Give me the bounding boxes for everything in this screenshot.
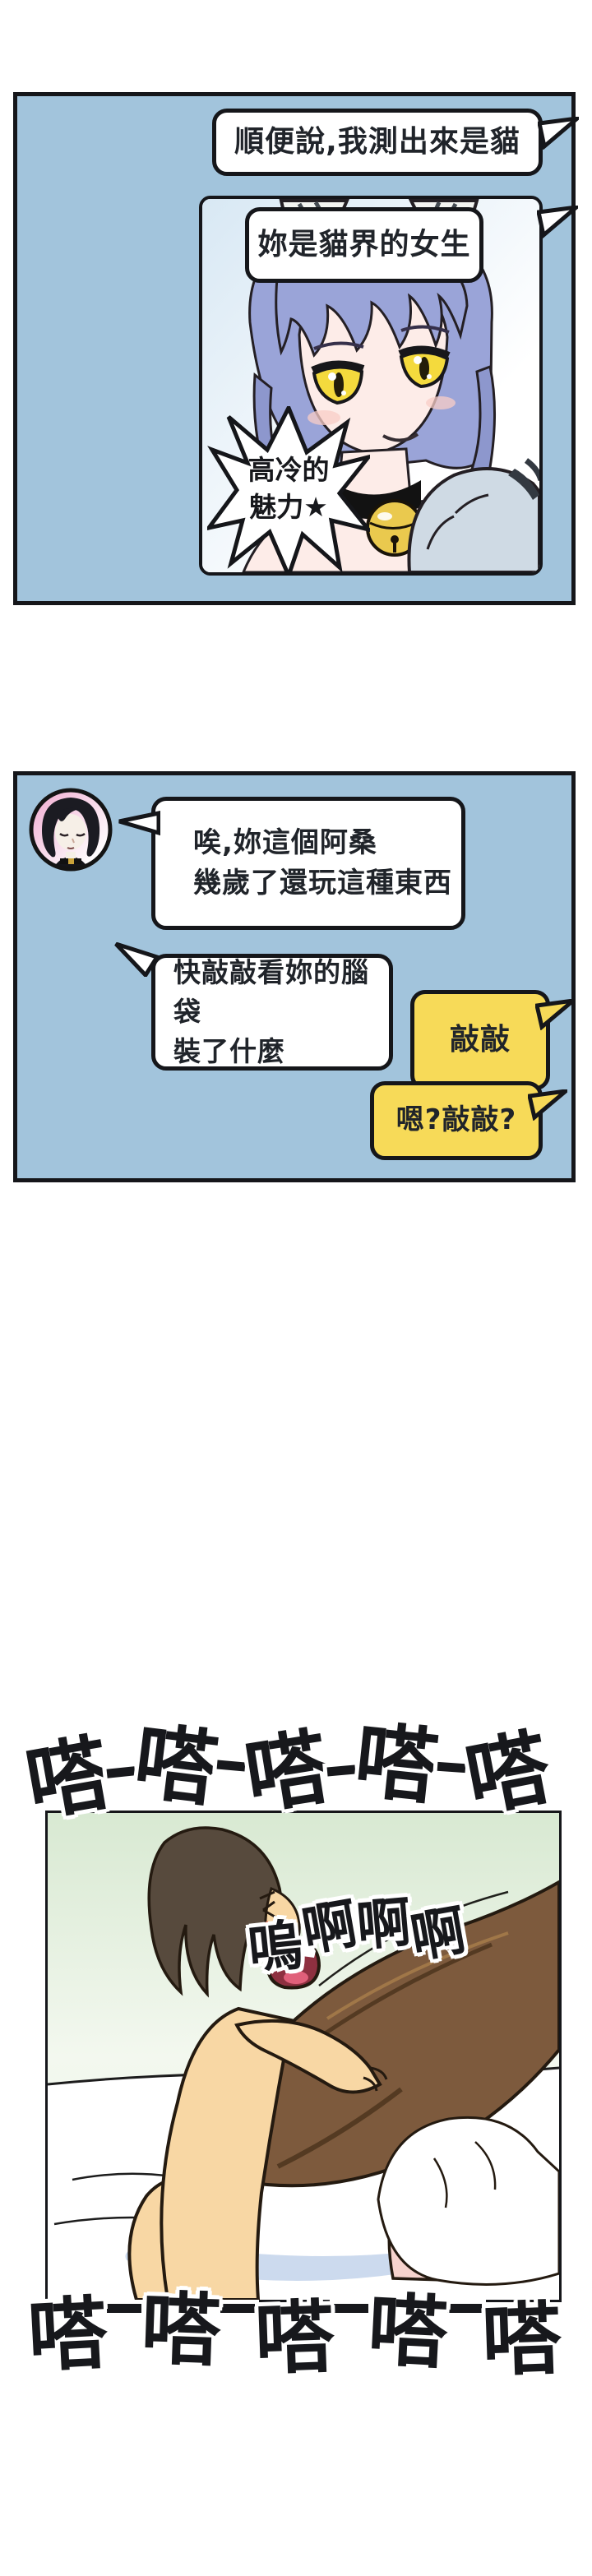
sfx-char: 嗒 [140,2289,221,2370]
sfx-dash [220,2304,255,2313]
bedroom-illustration-panel [45,1811,562,2302]
speech-bubble-f-text: 嗯?敲敲? [396,1100,516,1140]
speech-bubble-c-text: 唉,妳這個阿桑 幾歲了還玩這種東西 [155,823,461,904]
sfx-char: 嗒 [351,1719,442,1810]
speech-tail-d [114,942,160,977]
sfx-char: 嗒 [130,1720,221,1811]
speech-tail-f [528,1089,567,1121]
speech-tail-a [538,117,579,150]
sfx-dash [217,1760,246,1772]
sfx-dash [107,2304,141,2313]
comic-page: 順便說,我測出來是貓 [0,0,592,2576]
speech-bubble-d: 快敲敲看妳的腦袋 裝了什麼 [151,954,393,1071]
sfx-dash [327,1765,356,1777]
sfx-char: 嗒 [21,1732,116,1827]
sfx-char: 嗒 [26,2294,109,2377]
scream-sfx: 嗚 啊 啊 啊 [248,1898,465,1952]
starburst-text: 高冷的 魅力★ [207,452,370,525]
sfx-char: 啊 [354,1895,414,1954]
woman-avatar [27,786,114,873]
sfx-char: 啊 [407,1903,469,1966]
speech-tail-c [118,808,160,838]
speech-tail-b [537,206,578,238]
sfx-top-row: 嗒 嗒 嗒 嗒 嗒 [25,1725,548,1807]
panel-chat: 唉,妳這個阿桑 幾歲了還玩這種東西 快敲敲看妳的腦袋 裝了什麼 敲敲 嗯?敲敲? [13,771,576,1182]
speech-bubble-b: 妳是貓界的女生 [245,207,483,283]
speech-bubble-a-text: 順便說,我測出來是貓 [234,121,520,164]
speech-bubble-a: 順便說,我測出來是貓 [212,109,543,176]
bedroom-scene-illustration [48,1813,559,2300]
speech-bubble-d-text: 快敲敲看妳的腦袋 裝了什麼 [155,953,389,1071]
sfx-bottom-row: 嗒 嗒 嗒 嗒 嗒 [28,2291,561,2370]
speech-bubble-c: 唉,妳這個阿桑 幾歲了還玩這種東西 [151,797,465,930]
speech-bubble-f: 嗯?敲敲? [370,1081,543,1160]
sfx-dash [437,1762,466,1773]
speech-tail-e [535,999,575,1030]
speech-bubble-e: 敲敲 [410,990,550,1090]
inner-photo-frame: 妳是貓界的女生 高冷的 魅力★ [199,196,543,576]
sfx-char: 啊 [298,1897,361,1959]
sfx-char: 嗚 [246,1918,306,1978]
sfx-dash [107,1766,136,1778]
panel-top: 順便說,我測出來是貓 [13,92,576,605]
sfx-char: 嗒 [240,1726,334,1820]
sfx-dash [334,2304,368,2313]
sfx-char: 嗒 [366,2291,449,2374]
sfx-char: 嗒 [481,2299,562,2380]
speech-bubble-b-text: 妳是貓界的女生 [257,224,470,266]
sfx-char: 嗒 [460,1726,556,1822]
sfx-char: 嗒 [254,2297,335,2379]
sfx-dash [447,2304,482,2313]
speech-bubble-e-text: 敲敲 [450,1019,511,1061]
starburst-bubble: 高冷的 魅力★ [207,406,370,576]
